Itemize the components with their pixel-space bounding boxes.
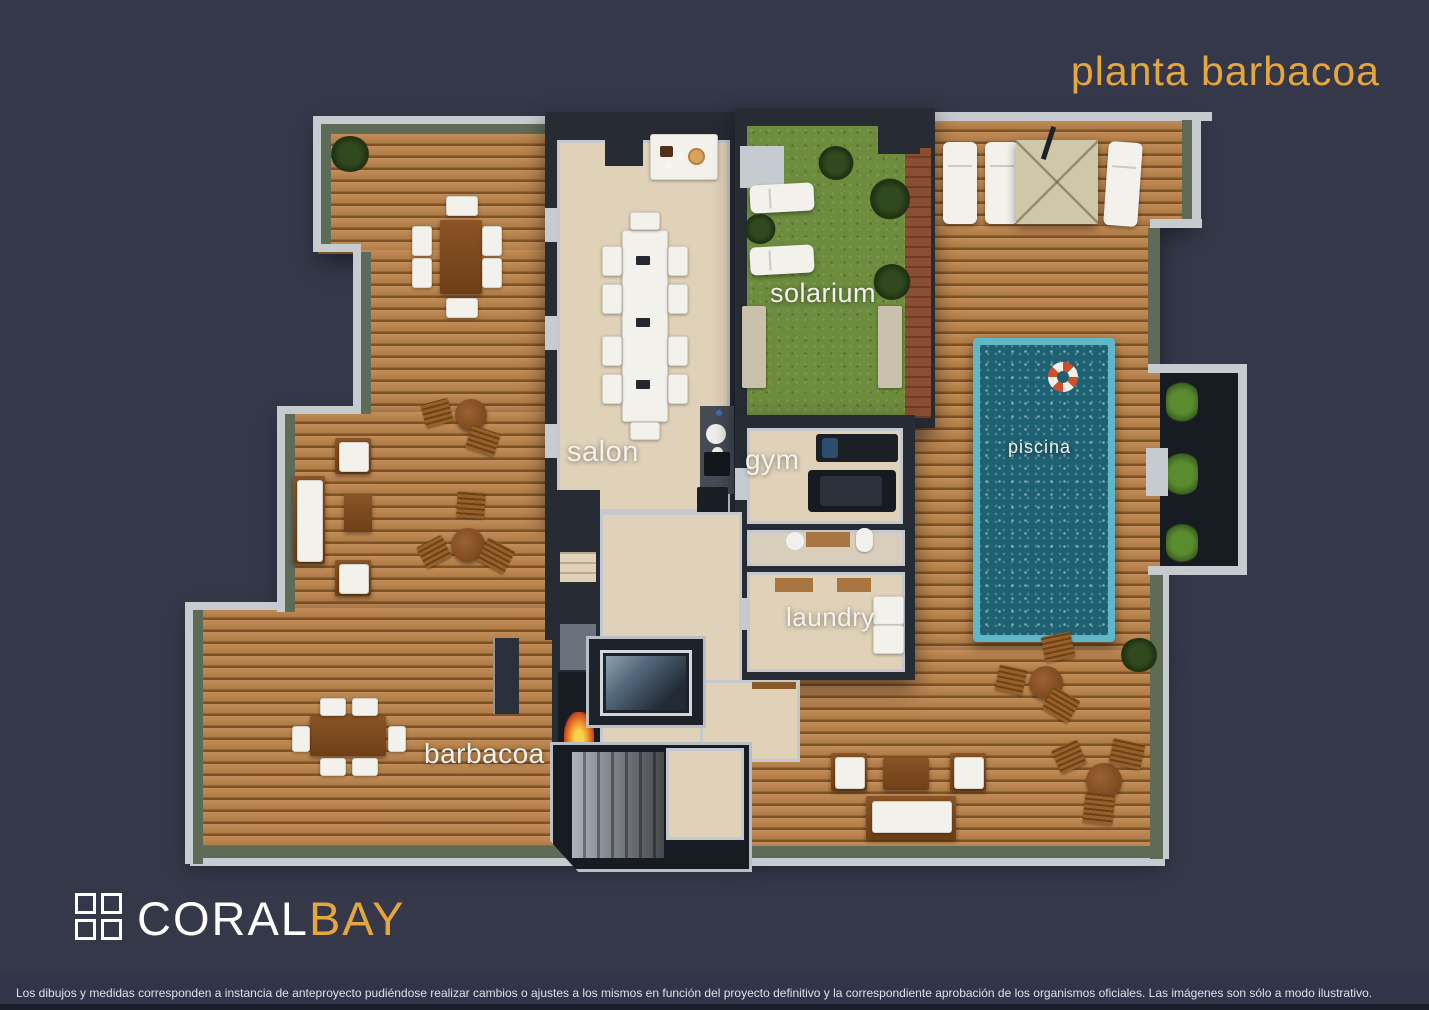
food-cup <box>666 162 673 169</box>
sun-lounger <box>1103 141 1143 227</box>
parasol-umbrella <box>1016 140 1098 224</box>
chair <box>602 246 622 276</box>
food-plate <box>676 152 685 161</box>
sun-lounger <box>985 142 1019 224</box>
sofa-cushion <box>872 801 952 833</box>
parapet-cap <box>277 406 285 612</box>
armchair-cushion <box>835 757 865 789</box>
entry-steps <box>560 552 596 582</box>
laundry-shelf <box>775 578 813 592</box>
chair <box>320 698 346 716</box>
chair <box>602 336 622 366</box>
parapet-cap <box>313 116 549 124</box>
interior-wall-corner <box>740 146 784 188</box>
parapet <box>321 124 331 252</box>
chair <box>412 226 432 256</box>
wall-pillar <box>605 140 643 166</box>
dining-table <box>440 220 482 294</box>
dryer-machine <box>873 625 904 654</box>
planter-plant <box>1166 522 1198 564</box>
toilet <box>856 528 873 552</box>
gym-treadmill-belt <box>820 476 882 506</box>
logo-bay: BAY <box>309 892 406 945</box>
cooktop <box>704 452 730 476</box>
footer-band: Los dibujos y medidas corresponden a ins… <box>0 972 1429 1010</box>
room-label-solarium: solarium <box>770 278 876 309</box>
parapet <box>1150 575 1163 859</box>
parapet-cap <box>277 406 361 414</box>
parapet <box>193 610 203 864</box>
parapet <box>361 252 371 414</box>
parapet-cap-top-right <box>930 112 1212 121</box>
place-setting <box>636 380 650 389</box>
sun-lounger <box>943 142 977 224</box>
parapet <box>313 124 549 134</box>
gym-weight-seat <box>822 438 838 458</box>
coffee-table <box>344 494 372 532</box>
parapet-cap <box>1192 112 1201 228</box>
room-label-barbacoa: barbacoa <box>424 738 545 770</box>
stair-landing <box>666 748 744 840</box>
window-logo-icon <box>75 893 127 945</box>
director-chair <box>995 664 1028 695</box>
parapet-cap <box>185 602 285 610</box>
chair <box>602 284 622 314</box>
plant <box>873 264 911 300</box>
swimming-pool <box>973 338 1115 642</box>
bathroom-counter <box>806 532 850 547</box>
kitchen-sink <box>706 424 726 444</box>
dining-table <box>310 716 386 756</box>
planter-recess-cap <box>1238 364 1247 575</box>
parapet-cap <box>313 116 321 252</box>
chair <box>482 226 502 256</box>
chair <box>446 196 478 216</box>
parapet <box>1182 120 1192 226</box>
storage-bench <box>495 638 519 714</box>
faucet <box>716 410 722 416</box>
chair <box>668 246 688 276</box>
parapet-cap <box>1163 575 1169 859</box>
place-setting <box>636 256 650 265</box>
plant <box>870 178 910 220</box>
plant <box>330 136 370 172</box>
chair <box>630 212 660 230</box>
chair <box>668 374 688 404</box>
washing-machine <box>873 596 904 625</box>
bench <box>742 306 766 388</box>
logo-text: CORALBAY <box>137 893 406 945</box>
director-chair <box>1083 793 1116 826</box>
armchair-cushion <box>339 564 369 594</box>
planter-plant <box>1166 450 1198 498</box>
plant <box>744 214 776 244</box>
sun-lounger <box>749 182 814 213</box>
bathroom-sink <box>786 532 804 550</box>
door-opening <box>545 424 557 458</box>
page-title: planta barbacoa <box>1071 48 1380 95</box>
food-tart <box>688 148 705 165</box>
elevator-cab <box>606 656 686 710</box>
coralbay-logo: CORALBAY <box>75 893 406 945</box>
planter-plant <box>1166 380 1198 424</box>
chair <box>446 298 478 318</box>
door-leaf <box>752 682 796 689</box>
parapet <box>1148 228 1160 368</box>
room-label-salon: salon <box>567 436 639 469</box>
room-label-piscina: piscina <box>1008 437 1071 458</box>
sofa-cushion <box>297 480 323 562</box>
chair <box>352 698 378 716</box>
bench <box>878 306 902 388</box>
parapet-cap <box>1150 219 1202 228</box>
footer-bottom-line <box>0 1004 1429 1010</box>
coffee-table <box>883 758 929 790</box>
room-label-laundry: laundry <box>786 602 875 633</box>
chair <box>320 758 346 776</box>
room-label-gym: gym <box>745 444 799 476</box>
plant <box>1120 638 1158 672</box>
laundry-shelf <box>837 578 871 592</box>
staircase-shade <box>572 752 664 858</box>
plant <box>818 146 854 180</box>
food-tray <box>660 146 673 157</box>
floor-plan-poster: { "title": "planta barbacoa", "logo": { … <box>0 0 1429 1010</box>
parapet-cap <box>353 244 361 414</box>
disclaimer-text: Los dibujos y medidas corresponden a ins… <box>16 986 1372 1000</box>
door-opening <box>545 316 557 350</box>
chair <box>602 374 622 404</box>
parapet-cap <box>185 602 193 864</box>
armchair-cushion <box>339 442 369 472</box>
planter-recess-cap <box>1148 364 1247 373</box>
director-chair <box>456 491 486 519</box>
lifebuoy <box>1048 362 1078 392</box>
logo-coral: CORAL <box>137 892 309 945</box>
chair <box>292 726 310 752</box>
chair <box>668 336 688 366</box>
place-setting <box>636 318 650 327</box>
wall-pillar <box>878 118 920 154</box>
armchair-cushion <box>954 757 984 789</box>
chair <box>482 258 502 288</box>
door-opening <box>545 208 557 242</box>
planter-recess-cap <box>1148 566 1247 575</box>
planter-bench <box>1146 448 1168 496</box>
chair <box>668 284 688 314</box>
chair <box>412 258 432 288</box>
chair <box>388 726 406 752</box>
sun-lounger <box>749 244 814 275</box>
chair <box>352 758 378 776</box>
